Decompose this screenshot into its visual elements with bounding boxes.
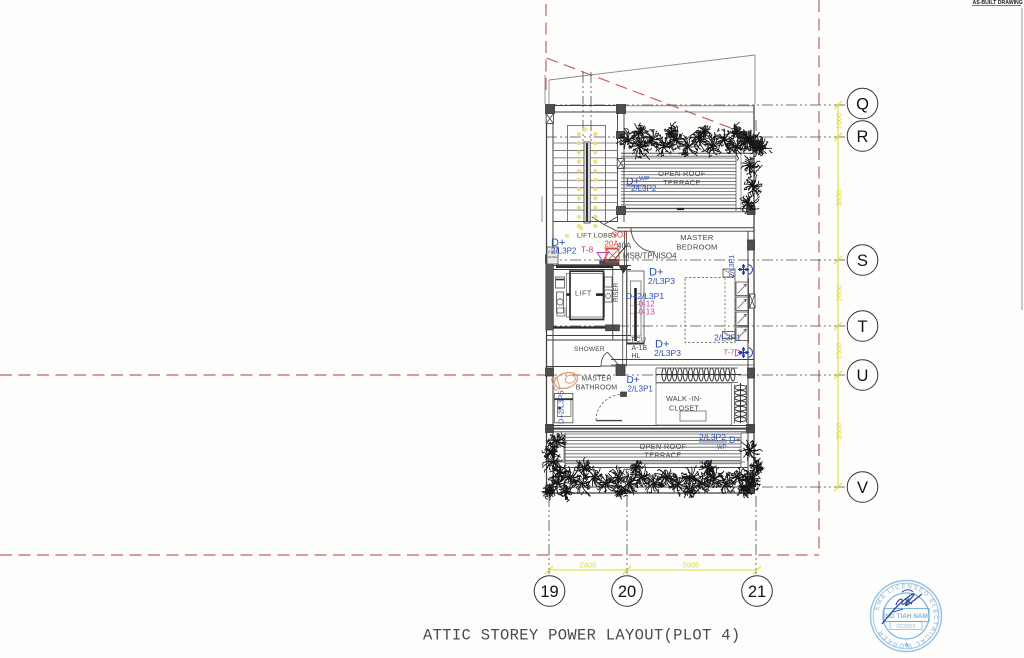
svg-text:WALK -IN-: WALK -IN-	[666, 394, 702, 403]
svg-text:5995: 5995	[683, 561, 700, 570]
svg-text:BEDROOM: BEDROOM	[676, 243, 717, 252]
svg-text:2400: 2400	[580, 561, 597, 570]
svg-text:SHOWER: SHOWER	[574, 346, 605, 353]
svg-text:2/L3P1: 2/L3P1	[729, 255, 736, 277]
svg-text:3850: 3850	[835, 190, 844, 207]
svg-text:21: 21	[748, 583, 766, 601]
svg-text:2/L3P2: 2/L3P2	[631, 184, 657, 193]
svg-text:TERRACE: TERRACE	[663, 178, 701, 187]
svg-text:WP: WP	[639, 176, 649, 183]
svg-text:2/L3P3: 2/L3P3	[654, 348, 681, 358]
svg-text:T-8: T-8	[581, 245, 594, 255]
svg-text:U: U	[857, 367, 869, 385]
svg-text:LIFT: LIFT	[575, 289, 592, 298]
svg-text:D+2/L3P5: D+2/L3P5	[557, 390, 566, 424]
svg-text:TERRACE: TERRACE	[644, 451, 681, 460]
svg-text:T: T	[857, 318, 867, 336]
svg-text:RISER: RISER	[613, 282, 620, 302]
svg-text:NG TIAH NAM: NG TIAH NAM	[885, 613, 928, 620]
svg-text:1000: 1000	[835, 113, 844, 130]
svg-text:2000: 2000	[835, 285, 844, 302]
svg-text:S: S	[857, 252, 868, 270]
svg-text:FCU: FCU	[632, 337, 646, 344]
svg-text:20A: 20A	[605, 240, 620, 249]
svg-text:PANEL: PANEL	[548, 255, 558, 259]
svg-text:HL: HL	[632, 353, 641, 360]
svg-text:OPEN ROOF: OPEN ROOF	[640, 442, 687, 451]
svg-text:Q: Q	[856, 96, 869, 114]
svg-text:MSB/TPNISO4: MSB/TPNISO4	[623, 252, 677, 261]
svg-text:2/L3P2: 2/L3P2	[551, 247, 577, 256]
svg-text:MASTER: MASTER	[581, 376, 611, 383]
svg-text:2/L3P1: 2/L3P1	[714, 333, 741, 343]
svg-text:2/L3P1: 2/L3P1	[628, 385, 654, 394]
svg-text:R: R	[857, 128, 869, 146]
svg-text:V: V	[857, 479, 868, 497]
svg-text:1500: 1500	[835, 343, 844, 360]
svg-text:19: 19	[540, 583, 558, 601]
svg-text:20: 20	[618, 583, 636, 601]
svg-text:←-0-13: ←-0-13	[628, 308, 655, 317]
svg-text:023355: 023355	[896, 624, 915, 630]
svg-text:T-7: T-7	[724, 348, 735, 357]
svg-text:ATTIC STOREY POWER LAYOUT(PLOT: ATTIC STOREY POWER LAYOUT(PLOT 4)	[423, 627, 741, 645]
svg-text:★: ★	[903, 640, 910, 649]
svg-text:WP: WP	[717, 445, 727, 451]
svg-text:CLOSET: CLOSET	[669, 403, 699, 412]
svg-text:3500: 3500	[835, 423, 844, 440]
svg-text:A-1B: A-1B	[632, 345, 648, 352]
svg-text:OPEN ROOF: OPEN ROOF	[658, 169, 706, 178]
svg-text:SO3: SO3	[612, 231, 629, 240]
svg-text:D+: D+	[729, 435, 741, 445]
svg-text:2/L3P3: 2/L3P3	[648, 276, 675, 286]
svg-text:BATHROOM: BATHROOM	[576, 384, 618, 391]
svg-text:2/L3P2: 2/L3P2	[699, 432, 726, 442]
svg-text:MASTER: MASTER	[680, 233, 714, 242]
